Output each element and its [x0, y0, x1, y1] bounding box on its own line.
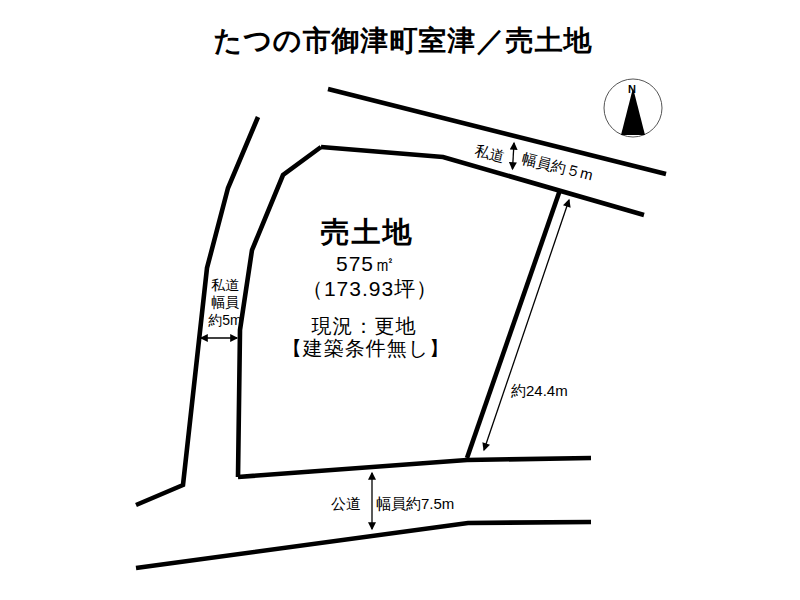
bottom-road-name-label: 公道: [331, 495, 361, 512]
left-road-width-label-line1: 幅員: [211, 294, 239, 310]
page-title: たつの市御津町室津／売土地: [214, 25, 593, 56]
left-road-name-label: 私道: [211, 277, 239, 293]
left-road-inner-edge-line: [238, 147, 321, 477]
plot-current-state-label: 現況：更地: [312, 315, 417, 337]
site-plan-page: たつの市御津町室津／売土地 N 私道 幅員約５m 私道 幅員 約5m: [0, 0, 800, 600]
plot-east-boundary: 約24.4m: [467, 190, 569, 458]
north-compass: N: [604, 79, 662, 137]
east-boundary-dimension-arrow: [484, 200, 569, 450]
east-boundary-length-label: 約24.4m: [511, 382, 568, 399]
bottom-road-upper-edge-line: [238, 458, 591, 477]
plot-name-label: 売土地: [321, 216, 414, 248]
plot-area-sqm-label: 575㎡: [336, 252, 396, 275]
left-road-width-label-line2: 約5m: [208, 312, 241, 328]
plot-area-tsubo-label: （173.93坪）: [302, 277, 438, 300]
compass-needle-icon: [621, 88, 645, 135]
compass-north-label: N: [628, 83, 636, 95]
land-plot-info: 売土地 575㎡ （173.93坪） 現況：更地 【建築条件無し】: [282, 216, 450, 359]
top-road-width-arrow: [513, 143, 515, 169]
private-road-left: 私道 幅員 約5m: [136, 117, 321, 505]
bottom-road-lower-edge-line: [136, 522, 591, 568]
plot-building-condition-label: 【建築条件無し】: [282, 337, 450, 359]
public-road-bottom: 公道 幅員約7.5m: [136, 458, 591, 568]
bottom-road-width-label: 幅員約7.5m: [376, 495, 454, 512]
top-road-name-label: 私道: [473, 141, 506, 165]
site-plan-drawing: たつの市御津町室津／売土地 N 私道 幅員約５m 私道 幅員 約5m: [0, 0, 800, 600]
private-road-top: 私道 幅員約５m: [321, 89, 666, 215]
plot-east-boundary-line: [467, 190, 560, 458]
